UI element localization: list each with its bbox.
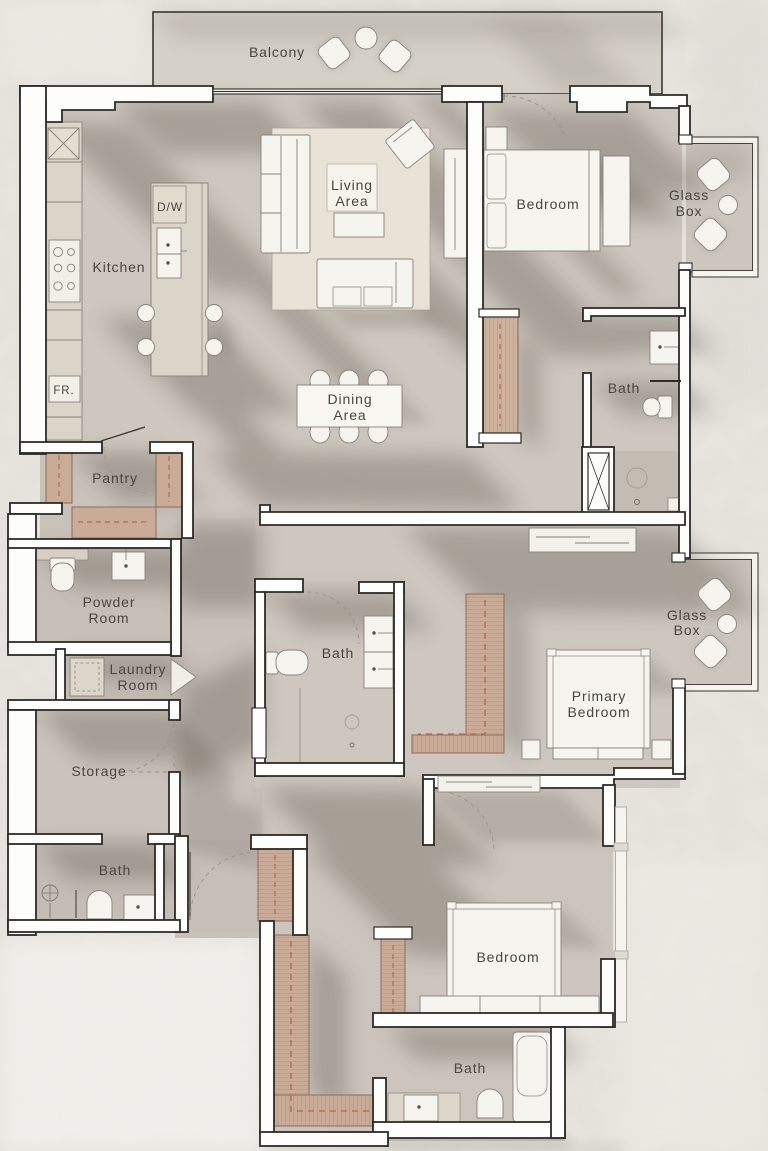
svg-text:Living: Living bbox=[331, 177, 373, 193]
svg-text:Area: Area bbox=[335, 193, 368, 209]
svg-text:Bedroom: Bedroom bbox=[476, 949, 539, 965]
svg-text:Glass: Glass bbox=[667, 607, 707, 623]
svg-text:Balcony: Balcony bbox=[249, 44, 305, 60]
svg-text:Dining: Dining bbox=[327, 391, 372, 407]
svg-text:Box: Box bbox=[676, 203, 703, 219]
svg-text:Room: Room bbox=[118, 677, 159, 693]
svg-text:Bath: Bath bbox=[99, 862, 131, 878]
svg-text:FR.: FR. bbox=[53, 385, 74, 397]
svg-text:Kitchen: Kitchen bbox=[93, 259, 146, 275]
svg-text:Storage: Storage bbox=[71, 763, 126, 779]
svg-text:Bath: Bath bbox=[454, 1060, 486, 1076]
svg-text:Bath: Bath bbox=[322, 645, 354, 661]
svg-text:Powder: Powder bbox=[83, 594, 136, 610]
svg-text:Box: Box bbox=[674, 622, 701, 638]
svg-text:Pantry: Pantry bbox=[92, 470, 138, 486]
svg-text:Bedroom: Bedroom bbox=[567, 704, 630, 720]
svg-text:D/W: D/W bbox=[157, 200, 183, 214]
svg-text:Bath: Bath bbox=[608, 380, 640, 396]
svg-text:Bedroom: Bedroom bbox=[516, 196, 579, 212]
svg-text:Room: Room bbox=[89, 610, 130, 626]
svg-text:Laundry: Laundry bbox=[110, 661, 167, 677]
svg-text:Glass: Glass bbox=[669, 187, 709, 203]
svg-text:Area: Area bbox=[333, 407, 366, 423]
svg-text:Primary: Primary bbox=[572, 688, 627, 704]
